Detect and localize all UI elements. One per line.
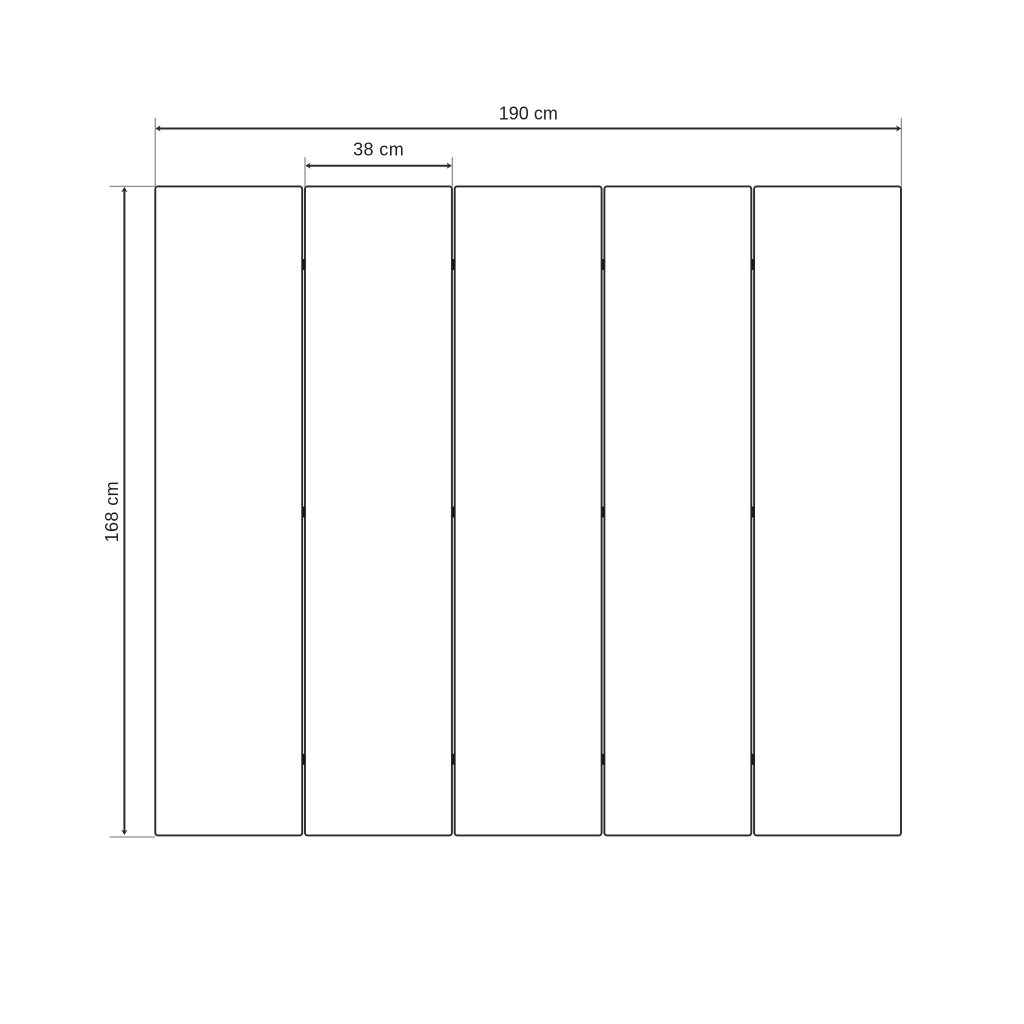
svg-text:38 cm: 38 cm	[353, 140, 404, 160]
svg-text:190 cm: 190 cm	[499, 104, 558, 124]
svg-text:168 cm: 168 cm	[102, 481, 122, 542]
